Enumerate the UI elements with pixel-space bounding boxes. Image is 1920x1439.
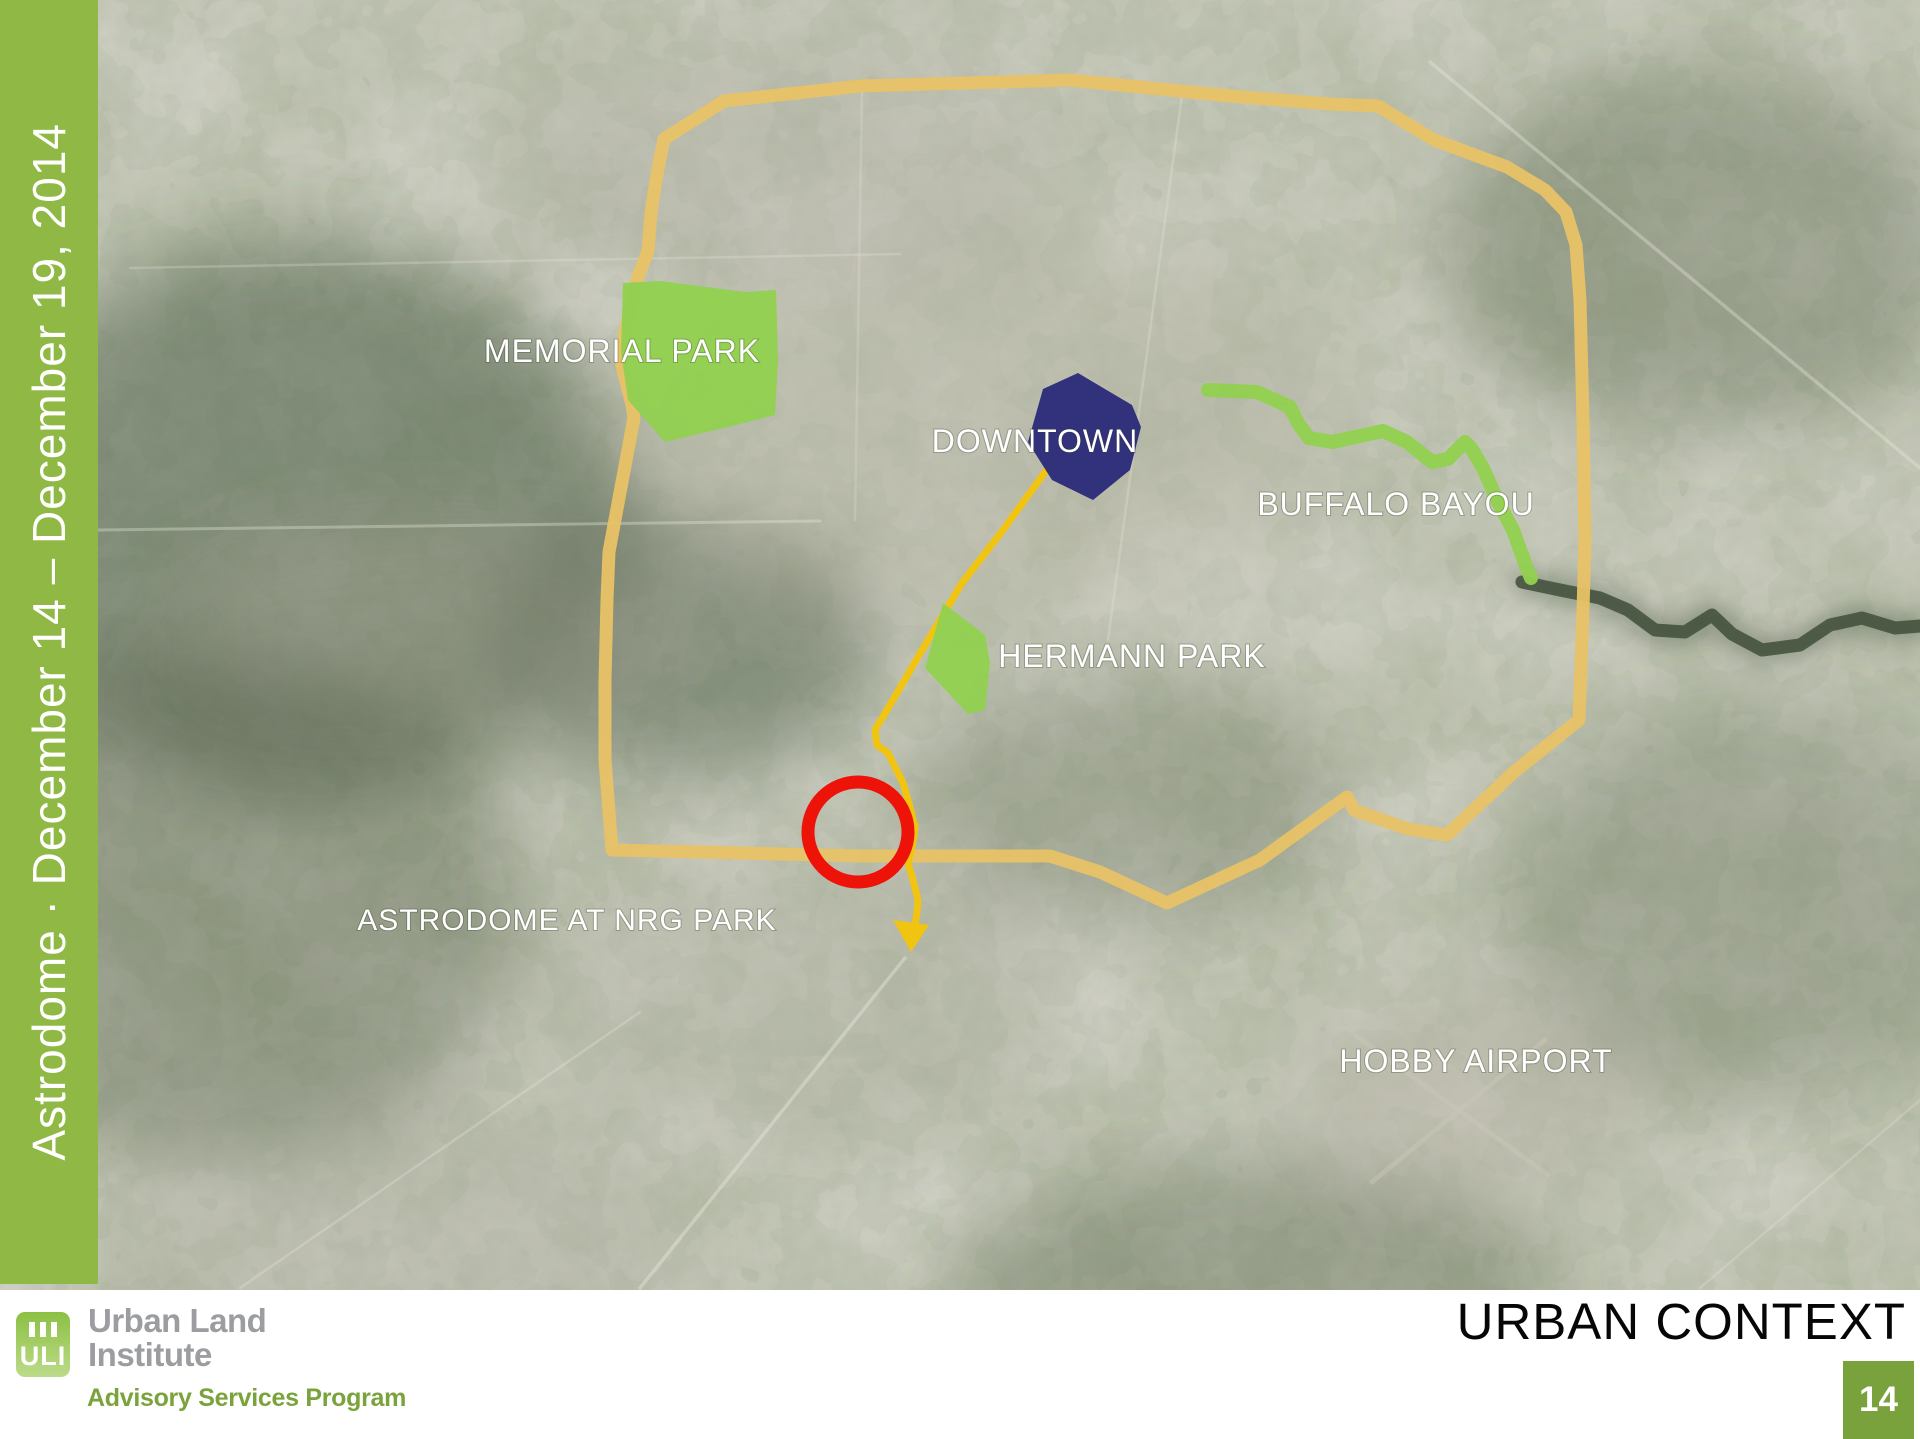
houston-satellite-map: MEMORIAL PARK DOWNTOWN BUFFALO BAYOU HER… <box>0 0 1920 1290</box>
uli-org-line1: Urban Land <box>88 1304 266 1338</box>
uli-program-name: Advisory Services Program <box>87 1384 406 1413</box>
page-number: 14 <box>1859 1380 1898 1420</box>
uli-logo-acronym: ULI <box>20 1341 67 1371</box>
uli-org-line2: Institute <box>88 1338 266 1372</box>
astrodome-label: ASTRODOME AT NRG PARK <box>357 904 776 937</box>
downtown-label: DOWNTOWN <box>932 423 1138 459</box>
slide-heading: URBAN CONTEXT <box>1457 1294 1906 1350</box>
hobby-airport-label: HOBBY AIRPORT <box>1339 1043 1612 1079</box>
uli-logo-icon: ULI <box>16 1312 70 1377</box>
page-number-badge: 14 <box>1843 1361 1914 1439</box>
memorial-park-label: MEMORIAL PARK <box>484 333 760 369</box>
slide-title-bar: Astrodome · December 14 – December 19, 2… <box>0 0 98 1284</box>
slide: MEMORIAL PARK DOWNTOWN BUFFALO BAYOU HER… <box>0 0 1920 1439</box>
uli-org-name: Urban Land Institute <box>88 1304 266 1372</box>
hermann-park-label: HERMANN PARK <box>998 638 1265 674</box>
footer: ULI Urban Land Institute Advisory Servic… <box>0 1290 1920 1439</box>
slide-title: Astrodome · December 14 – December 19, 2… <box>22 123 76 1161</box>
buffalo-bayou-label: BUFFALO BAYOU <box>1257 486 1534 522</box>
